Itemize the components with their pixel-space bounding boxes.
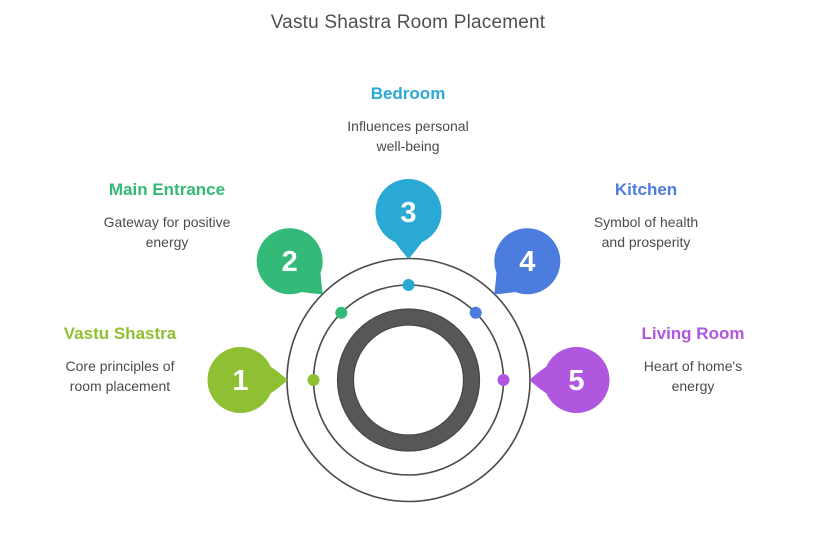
bubble-3-number: 3 (400, 197, 416, 229)
bubble-4-number: 4 (519, 246, 535, 278)
dot-4 (470, 307, 482, 319)
bubble-5-number: 5 (568, 365, 584, 397)
bubble-2-number: 2 (282, 246, 298, 278)
donut-ring (346, 317, 472, 443)
dot-3 (403, 279, 415, 291)
dot-1 (308, 374, 320, 386)
outer-ring (287, 259, 530, 502)
donut-ring-inner-edge (354, 325, 464, 435)
infographic-canvas: Vastu Shastra Room Placement Vastu Shast… (0, 0, 816, 538)
dot-5 (498, 374, 510, 386)
dot-2 (335, 307, 347, 319)
bubble-1-number: 1 (232, 365, 248, 397)
radial-diagram: 1 2 3 4 5 (0, 0, 816, 538)
